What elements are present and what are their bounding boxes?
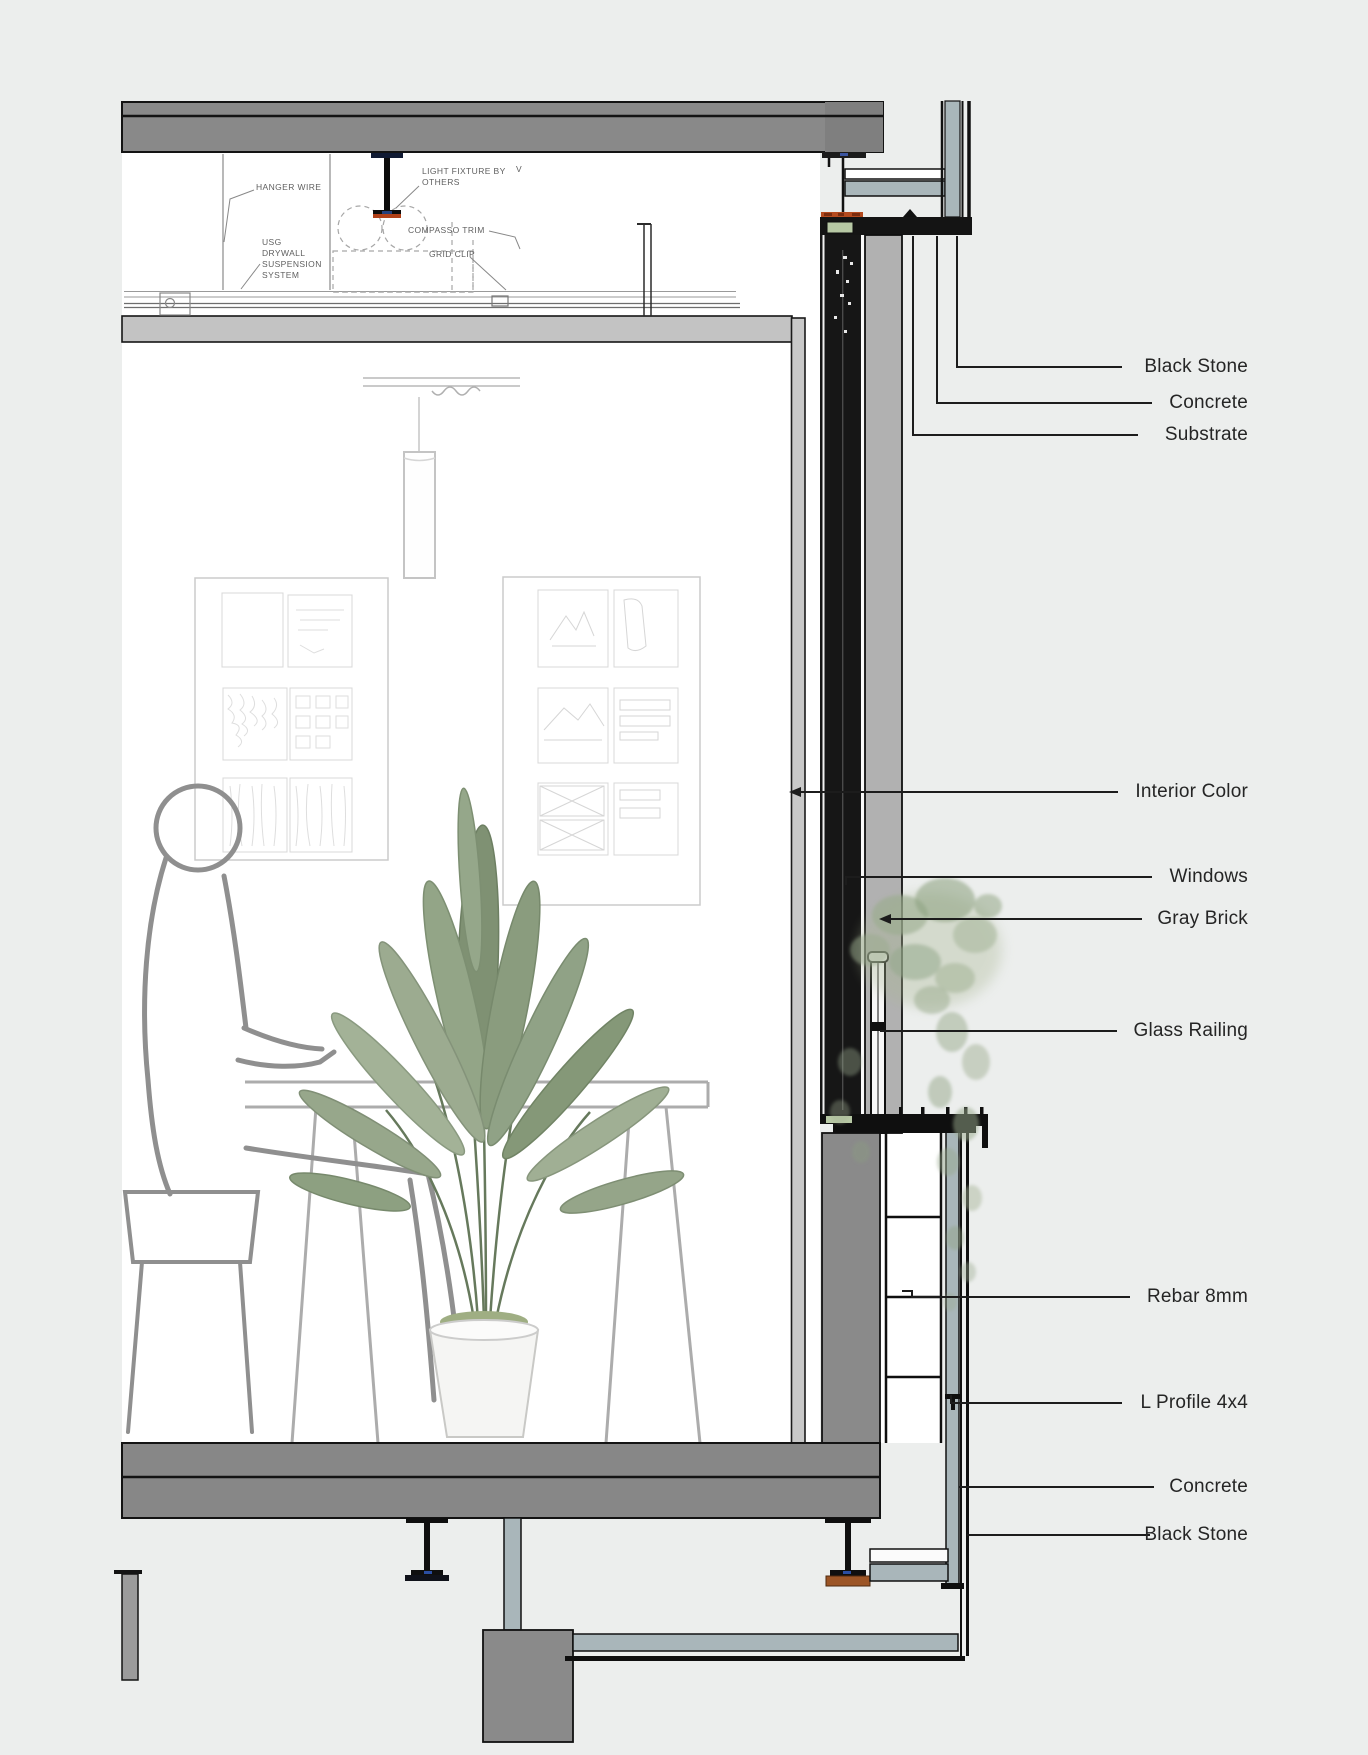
window-glazing-column	[820, 235, 865, 1117]
note-hanger-wire: HANGER WIRE	[256, 182, 321, 193]
lower-floor-slab	[122, 1443, 880, 1518]
lower-left-wall-stub	[114, 1570, 142, 1680]
callout-rebar-8mm: Rebar 8mm	[988, 1286, 1248, 1308]
parapet-column	[822, 1133, 880, 1445]
callout-concrete-top: Concrete	[988, 392, 1248, 414]
callout-gray-brick: Gray Brick	[988, 908, 1248, 930]
pinup-board-left	[195, 578, 388, 860]
soffit-bands-lower-right	[870, 1549, 948, 1581]
note-grid-clip: GRID CLIP	[429, 249, 475, 260]
callout-black-stone-top: Black Stone	[988, 356, 1248, 378]
hanger-ibeam-right	[825, 1518, 871, 1586]
callout-black-stone-bottom: Black Stone	[988, 1524, 1248, 1546]
lower-cladding-strip	[946, 1118, 959, 1585]
callout-windows: Windows	[988, 866, 1248, 888]
callout-glass-railing: Glass Railing	[988, 1020, 1248, 1042]
section-detail-sheet: Black Stone Concrete Substrate Interior …	[0, 0, 1368, 1755]
interior-finish-strip	[792, 318, 806, 1445]
pinup-board-right	[503, 577, 700, 905]
leader-black-stone-top	[957, 236, 1122, 367]
callout-substrate: Substrate	[988, 424, 1248, 446]
plant-pot	[430, 1311, 538, 1437]
soffit-bands	[845, 169, 945, 196]
note-light-fixture: LIGHT FIXTURE BY OTHERS	[422, 166, 506, 188]
callout-concrete-bottom: Concrete	[988, 1476, 1248, 1498]
callout-interior-color: Interior Color	[988, 781, 1248, 803]
hanger-ibeam-left	[405, 1518, 449, 1581]
upper-cladding-column	[942, 101, 969, 217]
note-v-mark: V	[516, 164, 522, 175]
callout-l-profile-4x4: L Profile 4x4	[988, 1392, 1248, 1414]
note-compasso-trim: COMPASSO TRIM	[408, 225, 485, 236]
note-usg-system: USG DRYWALL SUSPENSION SYSTEM	[262, 237, 322, 281]
